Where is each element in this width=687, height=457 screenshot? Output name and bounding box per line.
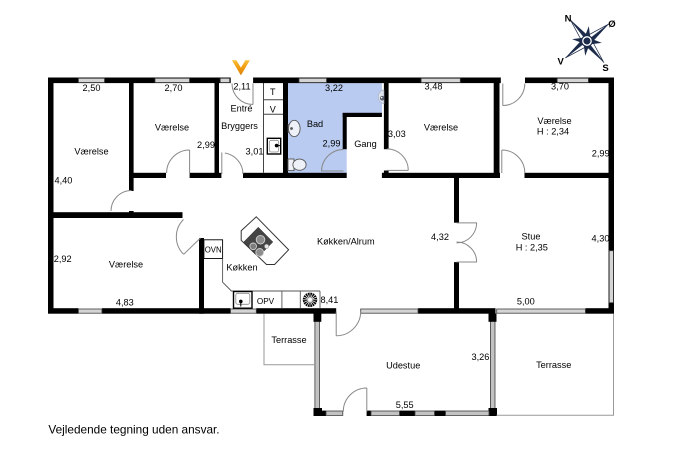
svg-text:Bad: Bad [307,119,323,129]
svg-text:Terrasse: Terrasse [536,360,571,370]
svg-text:T: T [270,87,276,97]
svg-text:Værelse: Værelse [155,123,189,133]
svg-text:Værelse: Værelse [424,122,458,132]
svg-text:OPV: OPV [257,297,275,306]
svg-text:5,55: 5,55 [396,400,414,410]
svg-text:Værelse: Værelse [537,116,571,126]
svg-text:2,11: 2,11 [233,82,250,92]
svg-text:H : 2,35: H : 2,35 [516,243,548,253]
svg-text:3,70: 3,70 [551,81,569,91]
svg-text:N: N [565,14,572,25]
svg-text:Udestue: Udestue [386,360,420,370]
svg-text:Køkken/Alrum: Køkken/Alrum [317,237,375,247]
svg-text:Terrasse: Terrasse [271,335,306,345]
svg-text:Værelse: Værelse [74,146,108,156]
svg-text:2,70: 2,70 [165,83,183,93]
svg-text:V: V [558,57,565,68]
svg-text:3,22: 3,22 [325,83,343,93]
svg-text:H : 2,34: H : 2,34 [537,126,569,136]
svg-text:5,00: 5,00 [517,296,535,306]
svg-text:Entré: Entré [231,103,253,113]
svg-text:2,92: 2,92 [54,254,72,264]
svg-text:3,26: 3,26 [471,352,489,362]
svg-text:Køkken: Køkken [226,262,257,272]
svg-text:2,99: 2,99 [592,148,610,158]
svg-text:Værelse: Værelse [109,259,143,269]
svg-text:S: S [602,63,608,74]
svg-text:3,03: 3,03 [388,129,406,139]
svg-text:Gang: Gang [354,139,376,149]
svg-text:4,32: 4,32 [431,232,449,242]
svg-text:Vejledende tegning uden ansvar: Vejledende tegning uden ansvar. [48,422,219,436]
svg-text:3,48: 3,48 [425,82,443,92]
svg-text:2,50: 2,50 [83,83,101,93]
svg-text:4,30: 4,30 [592,234,610,244]
svg-text:4,40: 4,40 [55,176,73,186]
svg-text:Ø: Ø [608,19,615,30]
svg-text:Bryggers: Bryggers [221,121,258,131]
svg-text:2,99: 2,99 [323,138,341,148]
svg-text:3,01: 3,01 [246,146,264,156]
svg-text:V: V [270,104,276,114]
svg-text:OVN: OVN [205,245,222,254]
svg-text:8,41: 8,41 [321,295,339,305]
svg-text:Stue: Stue [522,232,541,242]
svg-text:4,83: 4,83 [116,298,134,308]
svg-text:2,99: 2,99 [197,140,215,150]
